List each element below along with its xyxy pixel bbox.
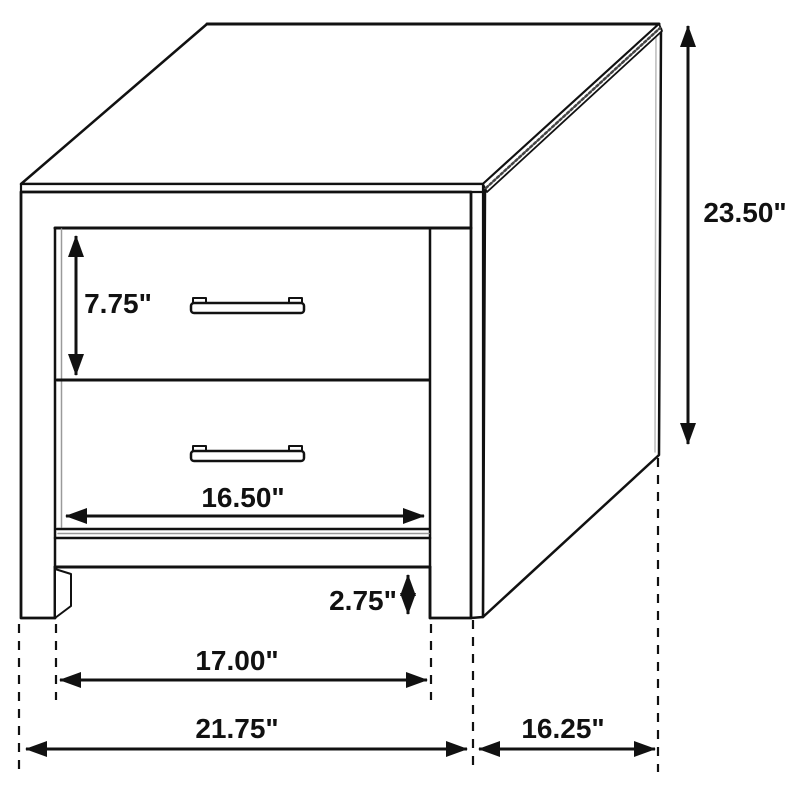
dim-side-depth-label: 16.25"	[521, 713, 604, 744]
dim-overall-height: 23.50"	[688, 26, 787, 444]
dim-between-legs-width-label: 17.00"	[195, 645, 278, 676]
dim-leg-height: 2.75"	[329, 575, 408, 616]
diagram-canvas: 7.75" 23.50" 16.50" 2.75" 17.00" 21.75" …	[0, 0, 800, 800]
front-frame	[21, 192, 471, 618]
dim-drawer-opening-width-label: 16.50"	[201, 482, 284, 513]
side-panel-back-edge-shade	[655, 33, 656, 452]
drawer-1-handle-bar	[191, 303, 304, 313]
dim-top-drawer-height-label: 7.75"	[84, 288, 152, 319]
dim-between-legs-width: 17.00"	[60, 645, 427, 680]
left-leg-side-face	[55, 569, 71, 618]
nightstand-drawing	[21, 24, 662, 618]
dim-overall-width-label: 21.75"	[195, 713, 278, 744]
drawer-2-handle-bar	[191, 451, 304, 461]
dim-overall-height-label: 23.50"	[703, 197, 786, 228]
dim-overall-width: 21.75"	[26, 713, 467, 749]
dim-leg-height-label: 2.75"	[329, 585, 397, 616]
right-leg-bottom-edge	[471, 617, 483, 618]
nightstand-dimension-diagram: 7.75" 23.50" 16.50" 2.75" 17.00" 21.75" …	[0, 0, 800, 800]
dim-side-depth: 16.25"	[479, 713, 655, 749]
